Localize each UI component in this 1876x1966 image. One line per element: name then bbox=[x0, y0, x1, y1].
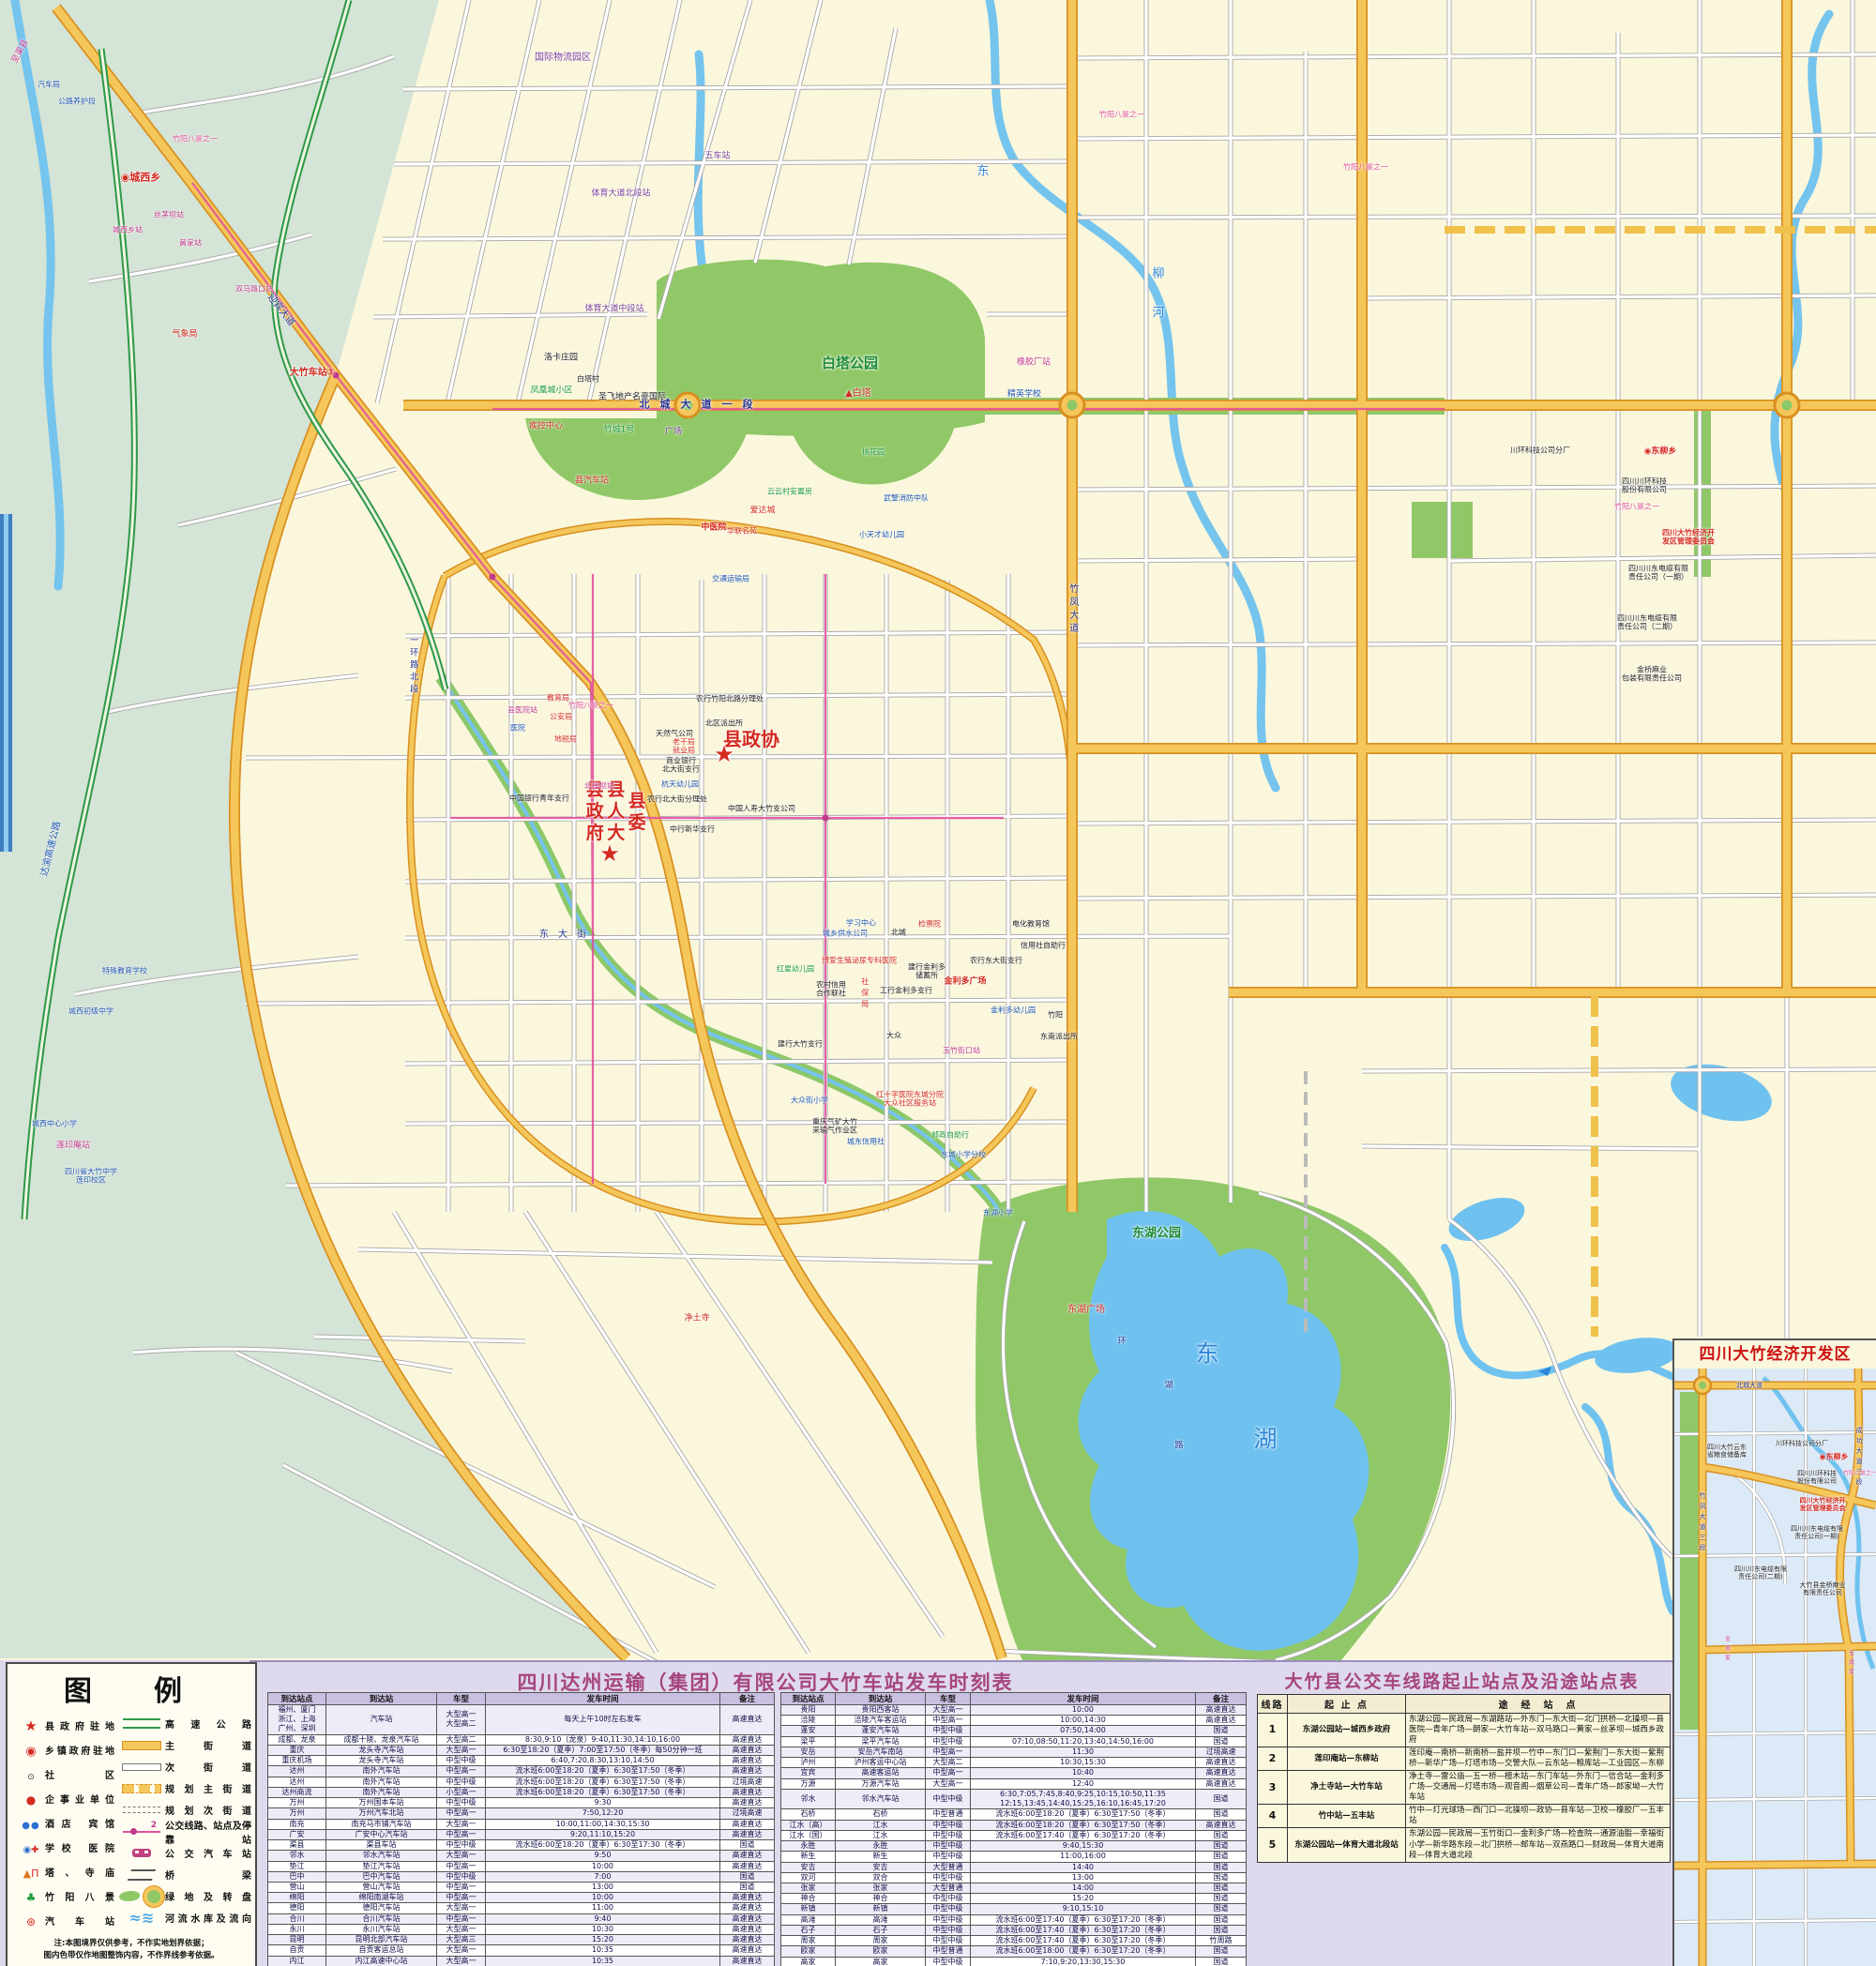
cell: 南外汽车站 bbox=[326, 1777, 437, 1787]
cell: 高速客运站 bbox=[836, 1768, 926, 1778]
bus-routes-title: 大竹县公交车线路起止站点及沿途站点表 bbox=[1253, 1668, 1671, 1693]
cell: 张家 bbox=[781, 1883, 836, 1893]
cell: 国道 bbox=[720, 1840, 775, 1851]
cell: 07:10,08:50,11:20,13:40,14:50,16:00 bbox=[971, 1736, 1196, 1747]
cell: 大型高一 bbox=[437, 1924, 486, 1934]
cell: 国道 bbox=[1196, 1736, 1247, 1747]
pagoda-temple-icon: ▲Π bbox=[23, 1868, 39, 1880]
legend-item: 桥梁 bbox=[122, 1864, 253, 1885]
bus-route-row: 2莲印庵站—东柳站莲印庵—南桥—新南桥—盐井坝—竹中—东门口—紫荆门—东大街—紫… bbox=[1258, 1747, 1671, 1771]
cell: 昆明北部汽车站 bbox=[326, 1935, 437, 1945]
cell: 高速直达 bbox=[1196, 1716, 1247, 1726]
cell: 中型中级 bbox=[437, 1756, 486, 1766]
departure-row: 永胜永胜中型中级9:40,15:30国道 bbox=[781, 1841, 1247, 1852]
departure-row: 福州、厦门 浙江、上海 广州、深圳汽车站大型高一 大型高二每天上午10时左右发车… bbox=[268, 1705, 775, 1735]
legend-item: ⊛汽车站 bbox=[17, 1908, 122, 1932]
cell: 4 bbox=[1258, 1805, 1288, 1828]
column-header: 备注 bbox=[1196, 1693, 1247, 1705]
cell: 邻水 bbox=[781, 1789, 836, 1808]
bus-route-row: 5东湖公园站—体育大道北段站东湖公园—民政局—玉竹街口—金利多广场—检查院—通源… bbox=[1258, 1828, 1671, 1862]
departure-row: 梁平梁平汽车站中型中级07:10,08:50,11:20,13:40,14:50… bbox=[781, 1736, 1247, 1747]
cell: 自贡 bbox=[268, 1945, 326, 1956]
cell: 达州商流 bbox=[268, 1787, 326, 1797]
cell: 高速直达 bbox=[720, 1734, 775, 1745]
cell: 德阳 bbox=[268, 1903, 326, 1913]
cell: 东湖公园站—城西乡政府 bbox=[1288, 1714, 1406, 1747]
cell: 高速直达 bbox=[1196, 1820, 1247, 1830]
cell: 大型高一 大型高二 bbox=[437, 1705, 486, 1735]
cell: 欧家 bbox=[781, 1946, 836, 1957]
departure-row: 重庆机场龙头寺汽车站中型中级6:40,7:20,8:30,13:10,14:50… bbox=[268, 1756, 775, 1766]
cell: 高家 bbox=[836, 1957, 926, 1966]
departure-row: 石桥石桥中型普通流水班6:00至18:20（夏季）6:30至17:50（冬季）国… bbox=[781, 1809, 1247, 1820]
cell: 万州国本车站 bbox=[326, 1798, 437, 1808]
departure-row: 万源万源汽车站大型高一12:40高速直达 bbox=[781, 1778, 1247, 1789]
cell: 东湖公园—民政局—玉竹街口—金利多广场—检查院—通源油脂—幸福街小学—新华路东段… bbox=[1406, 1828, 1671, 1862]
county-government-icon: ★ bbox=[24, 1717, 37, 1734]
cell: 永川汽车站 bbox=[326, 1924, 437, 1934]
legend-item-label: 企事业单位 bbox=[45, 1792, 114, 1806]
cell: 高速直达 bbox=[720, 1798, 775, 1808]
cell: 中型中级 bbox=[926, 1820, 971, 1830]
cell: 石桥 bbox=[836, 1809, 926, 1820]
legend-item: 高速公路 bbox=[122, 1713, 253, 1734]
legend-item-label: 酒店 宾馆 bbox=[45, 1816, 114, 1830]
cell: 13:00 bbox=[971, 1872, 1196, 1883]
cell: 巴中汽车站 bbox=[326, 1871, 437, 1882]
cell: 大型高一 bbox=[926, 1705, 971, 1716]
legend-line-list: 高速公路主街道次街道规划主街道规划次街道公交线路、站点及停靠站公交汽车站桥梁绿地… bbox=[122, 1713, 253, 1932]
legend-item: ★县政府驻地 bbox=[17, 1713, 122, 1737]
departure-row: 安吉安吉大型普通14:40国道 bbox=[781, 1862, 1247, 1872]
cell: 高速直达 bbox=[720, 1766, 775, 1777]
cell: 新镇 bbox=[836, 1904, 926, 1914]
cell: 中型高一 bbox=[437, 1893, 486, 1903]
cell: 流水班6:00至18:20（夏季）6:30至17:50（冬季） bbox=[486, 1787, 720, 1797]
cell: 江水 bbox=[836, 1830, 926, 1840]
cell: 周家 bbox=[781, 1936, 836, 1946]
cell: 重庆机场 bbox=[268, 1756, 326, 1766]
cell: 高速直达 bbox=[720, 1903, 775, 1913]
cell: 贵阳 bbox=[781, 1705, 836, 1716]
cell: 大型高三 bbox=[437, 1935, 486, 1945]
cell: 中型中级 bbox=[926, 1925, 971, 1935]
cell: 欧家 bbox=[836, 1946, 926, 1957]
cell: 9:50 bbox=[486, 1851, 720, 1861]
legend-item: ●企事业单位 bbox=[17, 1786, 122, 1810]
cell: 新生 bbox=[781, 1852, 836, 1862]
departure-row: 高家高家中型中级7:10,9:20,13:30,15:30国道 bbox=[781, 1957, 1247, 1966]
cell: 高家 bbox=[781, 1957, 836, 1966]
cell: 蓬安 bbox=[781, 1726, 836, 1736]
departure-row: 自贡自贡客运总站大型高一10:35高速直达 bbox=[268, 1945, 775, 1956]
cell: 10:00,14:30 bbox=[971, 1716, 1196, 1726]
departure-row: 渠县渠县车站中型中级流水班6:00至18:20（夏季）6:30至17:30（冬季… bbox=[268, 1840, 775, 1851]
departure-table-right: 到达站点到达站车型发车时间备注 贵阳贵阳西客站大型高一10:00高速直达涪陵涪陵… bbox=[780, 1692, 1247, 1966]
cell: 国道 bbox=[1196, 1809, 1247, 1820]
departure-row: 昆明昆明北部汽车站大型高三15:20高速直达 bbox=[268, 1935, 775, 1945]
cell: 大型高一 bbox=[437, 1851, 486, 1861]
cell: 6:30至18:20（夏季）7:00至17:50（冬季）每50分钟一班 bbox=[486, 1745, 720, 1755]
departure-row: 欧家欧家中型普通流水班6:00至18:00（夏季）6:30至17:20（冬季）国… bbox=[781, 1946, 1247, 1957]
cell: 泸州客运中心站 bbox=[836, 1758, 926, 1768]
departure-row: 新镇新镇中型中级9:10,15:10国道 bbox=[781, 1904, 1247, 1914]
cell: 国道 bbox=[1196, 1904, 1247, 1914]
cell: 合川汽车站 bbox=[326, 1913, 437, 1924]
cell: 邻水 bbox=[268, 1851, 326, 1861]
legend-note: 注:本图境界仅供参考，不作实地划界依据； 图内色带仅作地图整饰内容，不作界线参考… bbox=[9, 1938, 253, 1962]
departure-row: 绵阳绵阳南湖车站中型高一10:00高速直达 bbox=[268, 1893, 775, 1903]
cell: 安岳 bbox=[781, 1747, 836, 1757]
legend-item: 次街道 bbox=[122, 1756, 253, 1777]
cell: 成都、龙泉 bbox=[268, 1734, 326, 1745]
cell: 张家 bbox=[836, 1883, 926, 1893]
cell: 9:20,11:10,15:20 bbox=[486, 1829, 720, 1839]
main-street-sample bbox=[122, 1741, 161, 1750]
legend-item-label: 主街道 bbox=[165, 1738, 251, 1752]
column-header: 线路 bbox=[1258, 1695, 1288, 1714]
cell: 9:40,15:30 bbox=[971, 1841, 1196, 1852]
cell: 莲印庵—南桥—新南桥—盐井坝—竹中—东门口—紫荆门—东大街—紫荆桥—新华广场—灯… bbox=[1406, 1747, 1671, 1771]
departure-row: 巴中巴中汽车站中型中级7:00国道 bbox=[268, 1871, 775, 1882]
cell: 07:50,14:00 bbox=[971, 1726, 1196, 1736]
inset-map-canvas bbox=[1674, 1369, 1876, 1966]
cell: 石子 bbox=[836, 1925, 926, 1935]
cell: 流水班6:00至18:20（夏季）6:30至17:50（冬季） bbox=[486, 1777, 720, 1787]
cell: 中型中级 bbox=[926, 1894, 971, 1904]
cell: 大型高一 bbox=[437, 1745, 486, 1755]
legend-item-label: 次街道 bbox=[165, 1760, 251, 1774]
departure-row: 内江内江高速中心站大型高一10:35高速直达 bbox=[268, 1956, 775, 1966]
cell: 万州汽车北站 bbox=[326, 1808, 437, 1819]
cell: 中型普通 bbox=[926, 1809, 971, 1820]
cell: 10:00 bbox=[486, 1893, 720, 1903]
departure-table-left-header: 到达站点到达站车型发车时间备注 bbox=[268, 1693, 775, 1705]
cell: 高速直达 bbox=[720, 1913, 775, 1924]
cell: 永川 bbox=[268, 1924, 326, 1934]
cell: 东湖公园站—体育大道北段站 bbox=[1288, 1828, 1406, 1862]
departure-row: 万州万州汽车北站中型高一7:50,12:20过境高速 bbox=[268, 1808, 775, 1819]
cell: 高速直达 bbox=[720, 1756, 775, 1766]
cell: 石桥 bbox=[781, 1809, 836, 1820]
bus-route-sample bbox=[123, 1831, 160, 1833]
legend-item: 绿地及转盘 bbox=[122, 1885, 253, 1907]
inset-economic-zone-map: 四川大竹经济开发区 北城大道竹凤大道三段成功大道三段四川大竹云东 省粮食储备库川… bbox=[1672, 1338, 1876, 1966]
cell: 重庆 bbox=[268, 1745, 326, 1755]
cell: 国道 bbox=[1196, 1914, 1247, 1925]
cell: 3 bbox=[1258, 1771, 1288, 1805]
departure-row: 德阳德阳汽车站大型高一11:00高速直达 bbox=[268, 1903, 775, 1913]
cell: 11:00,16:00 bbox=[971, 1852, 1196, 1862]
departure-row: 达州南外汽车站中型高一流水班6:00至18:20（夏季）6:30至17:50（冬… bbox=[268, 1766, 775, 1777]
bus-routes-table: 线路起 止 点途 经 站 点 1东湖公园站—城西乡政府东湖公园—民政局—东湖路站… bbox=[1257, 1694, 1671, 1863]
legend-item: 公交线路、站点及停靠站 bbox=[122, 1821, 253, 1842]
cell: 国道 bbox=[1196, 1894, 1247, 1904]
departure-row: 安岳安岳汽车南站中型高一11:30过境高速 bbox=[781, 1747, 1247, 1757]
cell: 7:50,12:20 bbox=[486, 1808, 720, 1819]
column-header: 备注 bbox=[720, 1693, 775, 1705]
cell: 过境高速 bbox=[720, 1777, 775, 1787]
cell: 莲印庵站—东柳站 bbox=[1288, 1747, 1406, 1771]
cell: 15:20 bbox=[971, 1894, 1196, 1904]
departure-row: 邻水邻水汽车站大型高一9:50高速直达 bbox=[268, 1851, 775, 1861]
green-roundabout-sample bbox=[119, 1886, 164, 1907]
legend-item-label: 县政府驻地 bbox=[45, 1718, 114, 1732]
green-strip-east bbox=[1694, 408, 1711, 577]
cell: 中型中级 bbox=[926, 1726, 971, 1736]
departure-row: 周家周家中型中级流水班6:00至17:40（夏季）6:30至17:20（冬季）竹… bbox=[781, 1936, 1247, 1946]
legend-item-label: 竹阳八景 bbox=[45, 1889, 114, 1903]
cell: 12:40 bbox=[971, 1778, 1196, 1789]
planned-secondary-sample bbox=[123, 1807, 160, 1813]
cell: 10:00,11:00,14:30,15:30 bbox=[486, 1819, 720, 1829]
cell: 新生 bbox=[836, 1852, 926, 1862]
departure-row: 新生新生中型中级11:00,16:00国道 bbox=[781, 1852, 1247, 1862]
departure-row: 蓬安蓬安汽车站中型中级07:50,14:00国道 bbox=[781, 1726, 1247, 1736]
cell: 高速直达 bbox=[720, 1893, 775, 1903]
cell: 高速直达 bbox=[1196, 1768, 1247, 1778]
cell: 梁平 bbox=[781, 1736, 836, 1747]
bridge-sample bbox=[128, 1869, 156, 1881]
cell: 双河 bbox=[781, 1872, 836, 1883]
cell: 高速直达 bbox=[720, 1819, 775, 1829]
cell: 中型中级 bbox=[437, 1840, 486, 1851]
cell: 国道 bbox=[1196, 1841, 1247, 1852]
cell: 中型中级 bbox=[926, 1904, 971, 1914]
cell: 泸州 bbox=[781, 1758, 836, 1768]
cell: 中型中级 bbox=[926, 1736, 971, 1747]
cell: 国道 bbox=[1196, 1862, 1247, 1872]
cell: 自贡客运总站 bbox=[326, 1945, 437, 1956]
cell: 过境高速 bbox=[720, 1808, 775, 1819]
departure-row: 江水（国）江水中型中级流水班6:00至17:40（夏季）6:30至17:20（冬… bbox=[781, 1830, 1247, 1840]
column-header: 到达站点 bbox=[781, 1693, 836, 1705]
cell: 高速直达 bbox=[720, 1924, 775, 1934]
departure-table-left: 到达站点到达站车型发车时间备注 福州、厦门 浙江、上海 广州、深圳汽车站大型高一… bbox=[267, 1692, 775, 1966]
cell: 国道 bbox=[1196, 1789, 1247, 1808]
cell: 大型高一 bbox=[437, 1945, 486, 1956]
cell: 流水班6:00至18:20（夏季）6:30至17:50（冬季） bbox=[486, 1766, 720, 1777]
cell: 8:30,9:10（龙泉）9:40,11:30,14:10,16:00 bbox=[486, 1734, 720, 1745]
legend-item: ◉乡镇政府驻地 bbox=[17, 1737, 122, 1762]
cell: 大型高一 bbox=[926, 1778, 971, 1789]
cell: 10:35 bbox=[486, 1945, 720, 1956]
cell: 流水班6:00至18:20（夏季）6:30至17:30（冬季） bbox=[486, 1840, 720, 1851]
cell: 9:30 bbox=[486, 1798, 720, 1808]
school-hospital-icon: ◉✚ bbox=[23, 1845, 38, 1855]
cell: 高速直达 bbox=[720, 1705, 775, 1735]
departure-row: 南充南充马市铺汽车站大型高一10:00,11:00,14:30,15:30高速直… bbox=[268, 1819, 775, 1829]
legend-item-label: 高速公路 bbox=[165, 1716, 251, 1731]
bus-routes-header: 线路起 止 点途 经 站 点 bbox=[1258, 1695, 1671, 1714]
cell: 神合 bbox=[836, 1894, 926, 1904]
cell: 高速直达 bbox=[720, 1945, 775, 1956]
cell: 流水班6:00至17:40（夏季）6:30至17:20（冬季） bbox=[971, 1936, 1196, 1946]
cell: 昆明 bbox=[268, 1935, 326, 1945]
cell: 国道 bbox=[720, 1882, 775, 1892]
cell: 中型中级 bbox=[926, 1841, 971, 1852]
cell: 中型高一 bbox=[437, 1913, 486, 1924]
cell: 中型中级 bbox=[437, 1798, 486, 1808]
cell: 新镇 bbox=[781, 1904, 836, 1914]
cell: 达州 bbox=[268, 1777, 326, 1787]
cell: 7:00 bbox=[486, 1871, 720, 1882]
departure-row: 泸州泸州客运中心站大型高二10:30,15:30高速直达 bbox=[781, 1758, 1247, 1768]
township-government-icon: ◉ bbox=[25, 1745, 36, 1759]
cell: 龙头寺汽车站 bbox=[326, 1756, 437, 1766]
cell: 万源汽车站 bbox=[836, 1778, 926, 1789]
cell: 中型高一 bbox=[926, 1747, 971, 1757]
column-header: 到达站点 bbox=[268, 1693, 326, 1705]
cell: 安岳汽车南站 bbox=[836, 1747, 926, 1757]
cell: 绵阳 bbox=[268, 1893, 326, 1903]
bus-route-row: 3净土寺站—大竹车站净土寺—雷公庙—五一桥—檀木站—东门车站—外东门—信合站—金… bbox=[1258, 1771, 1671, 1805]
cell: 内江 bbox=[268, 1956, 326, 1966]
cell: 高速直达 bbox=[720, 1935, 775, 1945]
cell: 大型普通 bbox=[926, 1883, 971, 1893]
inset-green-strip bbox=[1680, 1392, 1699, 1730]
cell: 双合 bbox=[836, 1872, 926, 1883]
cell: 9:40 bbox=[486, 1913, 720, 1924]
cell: 小型高一 bbox=[437, 1787, 486, 1797]
cell: 高速直达 bbox=[1196, 1778, 1247, 1789]
cell: 7:10,9:20,13:30,15:30 bbox=[971, 1957, 1196, 1966]
cell: 南外汽车站 bbox=[326, 1766, 437, 1777]
cell: 10:30,15:30 bbox=[971, 1758, 1196, 1768]
legend-item-label: 乡镇政府驻地 bbox=[45, 1743, 114, 1757]
green-block-east bbox=[1412, 502, 1473, 558]
column-header: 起 止 点 bbox=[1288, 1695, 1406, 1714]
cell: 竹中—灯光球场—西门口—北操坝—政协—县车站—卫校—橡胶厂—五丰站 bbox=[1406, 1805, 1671, 1828]
cell: 6:30,7:05,7:45,8:40,9:25,10:15,10:50,11:… bbox=[971, 1789, 1196, 1808]
inset-title: 四川大竹经济开发区 bbox=[1674, 1340, 1876, 1369]
cell: 国道 bbox=[1196, 1830, 1247, 1840]
legend-item: ⊙社区 bbox=[17, 1762, 122, 1786]
departure-row: 张家张家大型普通14:00国道 bbox=[781, 1883, 1247, 1893]
cell: 永胜 bbox=[836, 1841, 926, 1852]
cell: 中型中级 bbox=[926, 1830, 971, 1840]
cell: 中型中级 bbox=[926, 1852, 971, 1862]
cell: 国道 bbox=[1196, 1852, 1247, 1862]
departure-row: 双河双合中型中级13:00国道 bbox=[781, 1872, 1247, 1883]
cell: 成都十陵、龙泉汽车站 bbox=[326, 1734, 437, 1745]
bus-route-row: 4竹中站—五丰站竹中—灯光球场—西门口—北操坝—政协—县车站—卫校—橡胶厂—五丰… bbox=[1258, 1805, 1671, 1828]
cell: 中型中级 bbox=[926, 1914, 971, 1925]
legend-item-label: 规划主街道 bbox=[165, 1781, 251, 1795]
enterprise-icon: ● bbox=[26, 1793, 36, 1807]
cell: 高速直达 bbox=[720, 1851, 775, 1861]
cell: 南充马市铺汽车站 bbox=[326, 1819, 437, 1829]
legend-symbol-list: ★县政府驻地◉乡镇政府驻地⊙社区●企事业单位●●酒店 宾馆◉✚学校 医院▲Π塔、… bbox=[9, 1713, 122, 1932]
cell: 东湖公园—民政局—东湖路站—外东门—东大街—北门拱桥—北操坝—县医院—青年广场—… bbox=[1406, 1714, 1671, 1747]
cell: 15:20 bbox=[486, 1935, 720, 1945]
cell: 5 bbox=[1258, 1828, 1288, 1862]
cell: 中型高一 bbox=[437, 1829, 486, 1839]
legend-item-label: 规划次街道 bbox=[165, 1803, 251, 1817]
cell: 流水班6:00至17:40（夏季）6:30至17:20（冬季） bbox=[971, 1925, 1196, 1935]
cell: 南充 bbox=[268, 1819, 326, 1829]
legend-item-label: 公交线路、站点及停靠站 bbox=[165, 1818, 251, 1846]
cell: 邻水汽车站 bbox=[326, 1851, 437, 1861]
cell: 国道 bbox=[1196, 1925, 1247, 1935]
planned-main-sample bbox=[122, 1784, 161, 1793]
cell: 国道 bbox=[720, 1871, 775, 1882]
cell: 宜宾 bbox=[781, 1768, 836, 1778]
cell: 国道 bbox=[1196, 1883, 1247, 1893]
expressway-sample bbox=[123, 1718, 160, 1729]
cell: 中型高一 bbox=[926, 1716, 971, 1726]
cell: 中型中级 bbox=[926, 1957, 971, 1966]
cell: 中型中级 bbox=[926, 1872, 971, 1883]
cell: 10:00 bbox=[486, 1861, 720, 1871]
cell: 万源 bbox=[781, 1778, 836, 1789]
column-header: 途 经 站 点 bbox=[1406, 1695, 1671, 1714]
cell: 内江高速中心站 bbox=[326, 1956, 437, 1966]
departure-row: 石子石子中型中级流水班6:00至17:40（夏季）6:30至17:20（冬季）国… bbox=[781, 1925, 1247, 1935]
map-edge-band-light bbox=[4, 514, 8, 852]
cell: 流水班6:00至17:40（夏季）6:30至17:20（冬季） bbox=[971, 1914, 1196, 1925]
departure-row: 成都、龙泉成都十陵、龙泉汽车站大型高二8:30,9:10（龙泉）9:40,11:… bbox=[268, 1734, 775, 1745]
departure-row: 万州万州国本车站中型中级9:30高速直达 bbox=[268, 1798, 775, 1808]
cell: 中型高一 bbox=[926, 1768, 971, 1778]
cell: 汽车站 bbox=[326, 1705, 437, 1735]
cell: 高速直达 bbox=[720, 1956, 775, 1966]
cell: 11:00 bbox=[486, 1903, 720, 1913]
cell: 中型高一 bbox=[437, 1766, 486, 1777]
cell: 中型中级 bbox=[926, 1789, 971, 1808]
cell: 福州、厦门 浙江、上海 广州、深圳 bbox=[268, 1705, 326, 1735]
departure-row: 重庆龙头寺汽车站大型高一6:30至18:20（夏季）7:00至17:50（冬季）… bbox=[268, 1745, 775, 1755]
cell: 中型高一 bbox=[437, 1861, 486, 1871]
cell: 万州 bbox=[268, 1798, 326, 1808]
departure-row: 江水（高）江水中型中级流水班6:00至18:20（夏季）6:30至17:50（冬… bbox=[781, 1820, 1247, 1830]
departure-row: 广安广安中心汽车站中型高一9:20,11:10,15:20高速直达 bbox=[268, 1829, 775, 1839]
cell: 涪陵汽车客运站 bbox=[836, 1716, 926, 1726]
departure-row: 涪陵涪陵汽车客运站中型高一10:00,14:30高速直达 bbox=[781, 1716, 1247, 1726]
departure-row: 达州商流南外汽车站小型高一流水班6:00至18:20（夏季）6:30至17:50… bbox=[268, 1787, 775, 1797]
cell: 国道 bbox=[1196, 1872, 1247, 1883]
cell: 渠县 bbox=[268, 1840, 326, 1851]
cell: 过境高速 bbox=[1196, 1747, 1247, 1757]
legend-panel: 图 例 ★县政府驻地◉乡镇政府驻地⊙社区●企事业单位●●酒店 宾馆◉✚学校 医院… bbox=[6, 1662, 257, 1966]
hotel-icon: ●● bbox=[22, 1821, 39, 1831]
cell: 广安 bbox=[268, 1829, 326, 1839]
legend-item-label: 桥梁 bbox=[165, 1868, 251, 1882]
cell: 江水（高） bbox=[781, 1820, 836, 1830]
cell: 10:35 bbox=[486, 1956, 720, 1966]
cell: 10:00 bbox=[971, 1705, 1196, 1716]
secondary-street-sample bbox=[122, 1763, 161, 1771]
cell: 中型高一 bbox=[437, 1882, 486, 1892]
column-header: 发车时间 bbox=[486, 1693, 720, 1705]
cell: 江水（国） bbox=[781, 1830, 836, 1840]
legend-item-label: 河流水库及流向 bbox=[165, 1911, 251, 1925]
dazhu-city-map-sheet: 至渠县汽车局公路养护段竹阳八景之一◉城西乡丝茅坝站城西乡站黄家站双马路口站大竹车… bbox=[0, 0, 1876, 1966]
cell: 竹中站—五丰站 bbox=[1288, 1805, 1406, 1828]
cell: 国道 bbox=[1196, 1946, 1247, 1957]
departure-row: 贵阳贵阳西客站大型高一10:00高速直达 bbox=[781, 1705, 1247, 1716]
cell: 德阳汽车站 bbox=[326, 1903, 437, 1913]
cell: 高速直达 bbox=[1196, 1758, 1247, 1768]
cell: 2 bbox=[1258, 1747, 1288, 1771]
cell: 营山汽车站 bbox=[326, 1882, 437, 1892]
legend-item-label: 公交汽车站 bbox=[165, 1846, 251, 1860]
departure-row: 神合神合中型中级15:20国道 bbox=[781, 1894, 1247, 1904]
column-header: 车型 bbox=[926, 1693, 971, 1705]
legend-item-label: 汽车站 bbox=[45, 1913, 114, 1928]
cell: 国道 bbox=[1196, 1726, 1247, 1736]
departure-row: 永川永川汽车站大型高一10:30高速直达 bbox=[268, 1924, 775, 1934]
